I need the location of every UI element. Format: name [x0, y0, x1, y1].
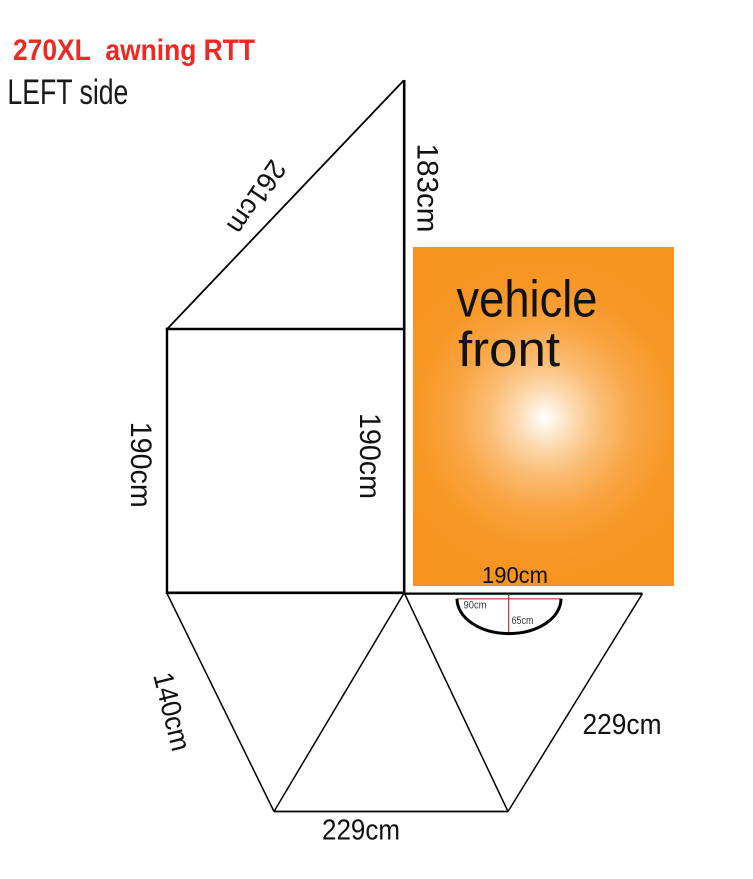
svg-text:front: front	[458, 323, 560, 377]
svg-text:LEFT side: LEFT side	[7, 73, 128, 112]
svg-text:261cm: 261cm	[221, 155, 293, 240]
svg-text:90cm: 90cm	[464, 600, 487, 612]
svg-text:190cm: 190cm	[482, 562, 548, 588]
svg-text:140cm: 140cm	[147, 669, 196, 754]
svg-text:229cm: 229cm	[583, 709, 662, 741]
svg-text:65cm: 65cm	[512, 615, 534, 627]
svg-text:vehicle: vehicle	[457, 271, 598, 329]
svg-text:270XL awning RTT: 270XL awning RTT	[13, 34, 255, 67]
svg-text:190cm: 190cm	[124, 422, 157, 508]
svg-text:183cm: 183cm	[411, 144, 444, 233]
svg-text:229cm: 229cm	[322, 815, 400, 847]
svg-text:190cm: 190cm	[353, 413, 386, 499]
